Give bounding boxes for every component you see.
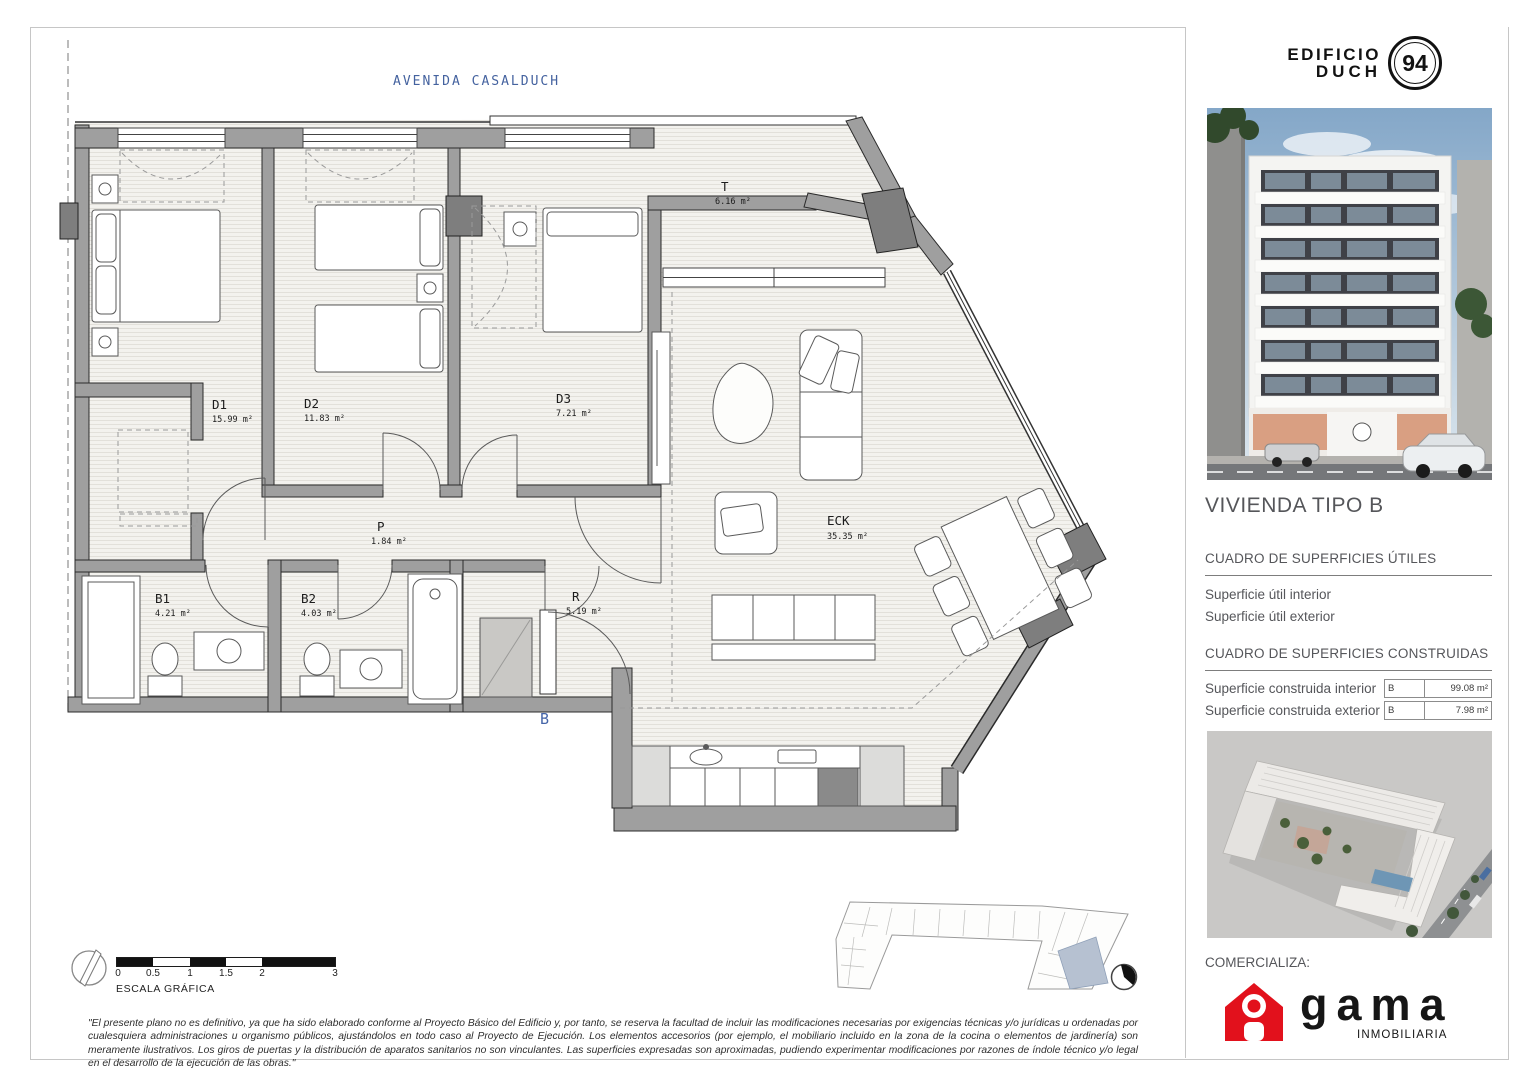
- scale-bar-segments: [116, 957, 336, 967]
- unit-letter-label: B: [540, 710, 549, 728]
- brand-name: gama: [1300, 982, 1454, 1027]
- oven-icon: [818, 768, 858, 806]
- section-rule: [1205, 670, 1492, 671]
- scale-ticks: 0 0.5 1 1.5 2 3: [116, 968, 346, 981]
- built-interior-row: Superficie construida interior B 99.08 m…: [1205, 677, 1492, 699]
- built-interior-value-box: B 99.08 m²: [1384, 679, 1492, 698]
- kitchen-counter-icon: [632, 745, 904, 807]
- logo-line1: EDIFICIO: [1287, 46, 1381, 63]
- room-area: 7.21 m²: [556, 409, 592, 419]
- built-exterior-value-box: B 7.98 m²: [1384, 701, 1492, 720]
- value-cell: 7.98 m²: [1425, 702, 1491, 719]
- room-area: 5.19 m²: [566, 607, 602, 617]
- room-label: D1: [212, 397, 227, 412]
- room-label: P: [377, 519, 385, 534]
- tv-unit-icon: [652, 332, 670, 484]
- scale-tick: 0.5: [146, 968, 160, 979]
- section-rule: [1205, 575, 1492, 576]
- site-plan-thumbnail: [836, 902, 1128, 989]
- value-cell: 99.08 m²: [1425, 680, 1491, 697]
- useful-exterior-row: Superficie útil exterior: [1205, 606, 1335, 628]
- room-area: 1.84 m²: [371, 537, 407, 547]
- toilet-icon: [300, 676, 334, 696]
- unit-title: VIVIENDA TIPO B: [1205, 494, 1384, 518]
- scale-tick: 1: [187, 968, 193, 979]
- room-label: D2: [304, 396, 319, 411]
- type-cell: B: [1385, 702, 1425, 719]
- sink-icon: [690, 749, 722, 765]
- room-area: 35.35 m²: [827, 532, 868, 542]
- gama-logo: gama INMOBILIARIA: [1222, 980, 1454, 1044]
- useful-interior-row: Superficie útil interior: [1205, 584, 1331, 606]
- useful-surfaces-heading: CUADRO DE SUPERFICIES ÚTILES: [1205, 551, 1436, 566]
- scale-tick: 1.5: [219, 968, 233, 979]
- sideboard-icon: [712, 595, 875, 660]
- edificio-duch-logo: EDIFICIO DUCH 94: [1262, 36, 1442, 90]
- scale-label: ESCALA GRÁFICA: [116, 983, 346, 995]
- room-area: 4.03 m²: [301, 609, 337, 619]
- duct-shaft: [480, 618, 532, 697]
- gama-house-icon: [1222, 980, 1286, 1044]
- building-floors: [1255, 170, 1445, 408]
- brand-subtitle: INMOBILIARIA: [1357, 1029, 1448, 1041]
- scale-tick: 3: [332, 968, 338, 979]
- scale-bar: 0 0.5 1 1.5 2 3 ESCALA GRÁFICA: [116, 957, 346, 995]
- street-label: AVENIDA CASALDUCH: [393, 74, 560, 89]
- floor-plan-drawing: D1 15.99 m² D2 11.83 m² D3 7.21 m² T 6.1…: [0, 0, 1180, 1010]
- hob-icon: [778, 750, 816, 763]
- logo-line2: DUCH: [1316, 63, 1381, 80]
- building-facade-photo: [1207, 108, 1492, 480]
- aerial-render-image: [1207, 731, 1492, 938]
- disclaimer-text: "El presente plano no es definitivo, ya …: [88, 1017, 1138, 1071]
- room-area: 15.99 m²: [212, 415, 253, 425]
- armchair-icon: [715, 492, 777, 554]
- north-compass-small-icon: [1112, 965, 1137, 990]
- entry-door-leaf: [540, 610, 556, 694]
- scale-tick: 0: [115, 968, 121, 979]
- room-label: T: [721, 179, 729, 194]
- room-label: B1: [155, 591, 170, 606]
- built-exterior-label: Superficie construida exterior: [1205, 703, 1384, 718]
- room-area: 4.21 m²: [155, 609, 191, 619]
- type-cell: B: [1385, 680, 1425, 697]
- built-interior-label: Superficie construida interior: [1205, 681, 1384, 696]
- built-exterior-row: Superficie construida exterior B 7.98 m²: [1205, 699, 1492, 721]
- room-label: ECK: [827, 513, 850, 528]
- built-surfaces-heading: CUADRO DE SUPERFICIES CONSTRUIDAS: [1205, 646, 1488, 661]
- scale-tick: 2: [259, 968, 265, 979]
- room-label: D3: [556, 391, 571, 406]
- room-area: 6.16 m²: [715, 197, 751, 207]
- facade-logo-badge: [1353, 423, 1371, 441]
- room-area: 11.83 m²: [304, 414, 345, 424]
- toilet-icon: [148, 676, 182, 696]
- logo-94-badge: 94: [1388, 36, 1442, 90]
- terrace-railing: [490, 116, 856, 125]
- north-compass-icon: [72, 950, 106, 986]
- sofa-icon: [798, 330, 862, 480]
- room-label: R: [572, 589, 580, 604]
- room-label: B2: [301, 591, 316, 606]
- marketer-label: COMERCIALIZA:: [1205, 955, 1310, 970]
